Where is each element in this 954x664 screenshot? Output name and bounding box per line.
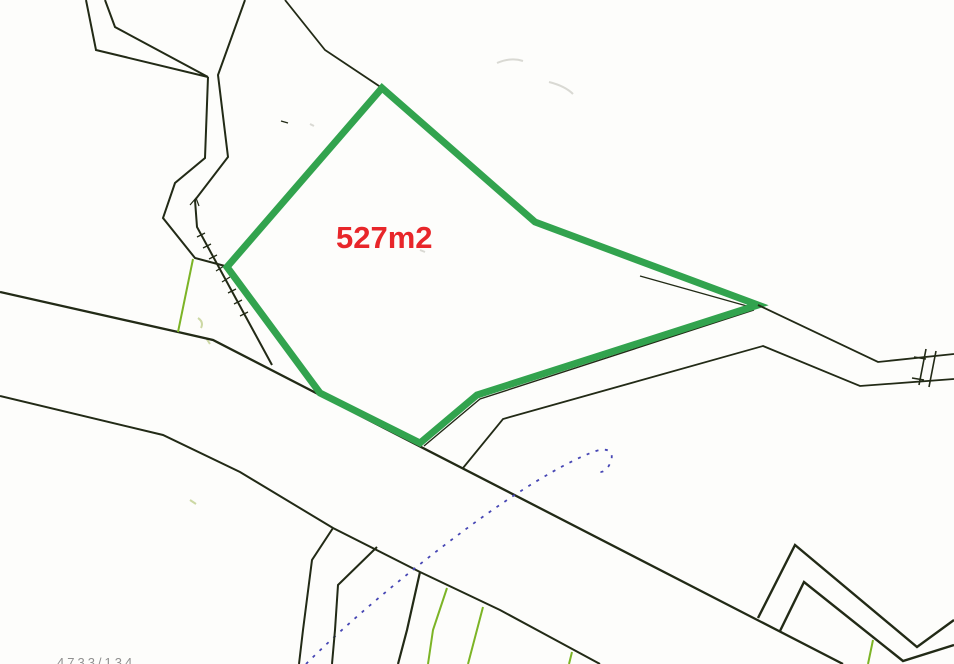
road-lower-edge — [0, 396, 600, 664]
field-line-bottom-right — [868, 640, 873, 664]
survey-dashed-curve — [306, 450, 612, 664]
cadastral-map-svg — [0, 0, 954, 664]
parcel-number-label: 4733/134 — [57, 655, 135, 664]
parcel-area-label: 527m2 — [336, 220, 433, 256]
field-line-bottom-3 — [569, 652, 572, 664]
field-line-bottom-1 — [428, 588, 447, 664]
zigzag-outer-boundary — [758, 545, 954, 647]
parcel-boundary-underlay-lower — [424, 310, 754, 446]
field-line-upper-left — [178, 259, 193, 332]
scan-smudge-olive — [190, 318, 210, 504]
road-upper-edge — [0, 292, 843, 664]
branch-boundary-3 — [398, 572, 420, 664]
small-dash — [281, 121, 288, 123]
zigzag-inner-boundary — [780, 582, 954, 661]
boundary-into-apex — [285, 0, 382, 88]
field-line-bottom-2 — [468, 607, 483, 664]
parcel-527-highlight[interactable] — [227, 88, 758, 443]
map-stage: 527m2 4733/134 — [0, 0, 954, 664]
track-outer-left-boundary — [86, 0, 208, 77]
boundary-right-lower — [463, 346, 954, 468]
